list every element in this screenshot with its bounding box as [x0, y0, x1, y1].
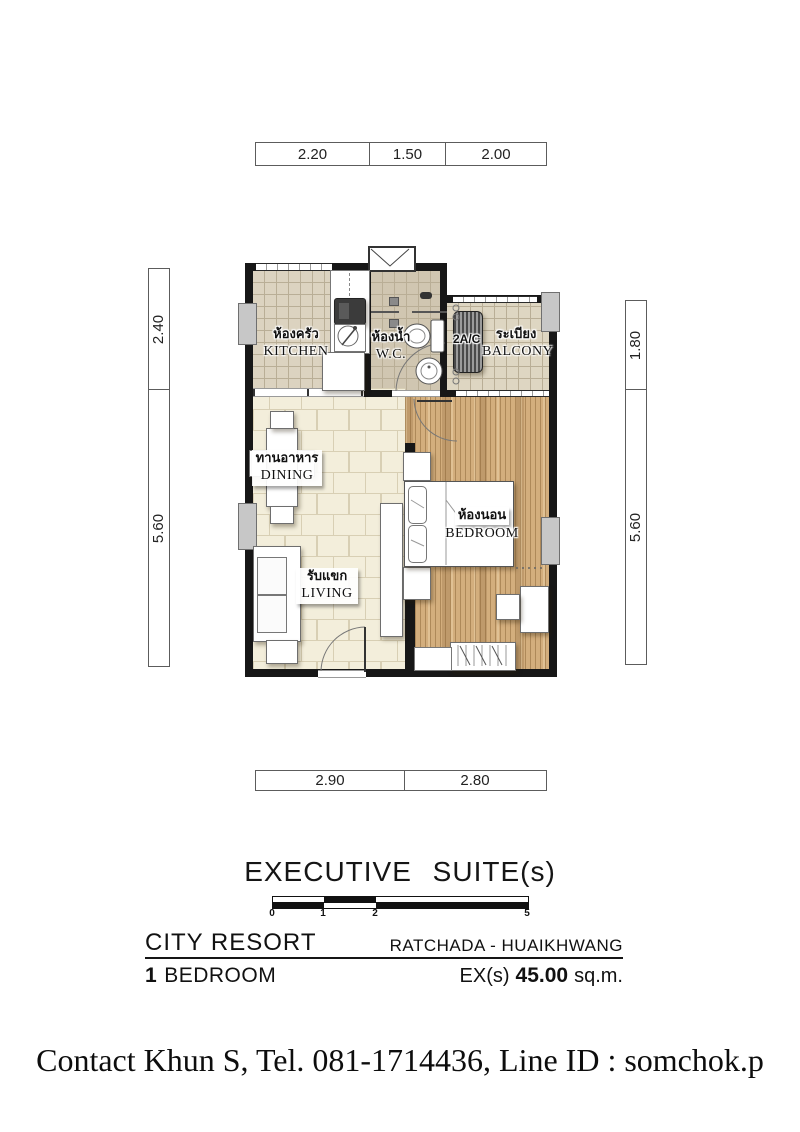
balcony-label-en: BALCONY [482, 343, 550, 361]
dim-left-1: 2.40 [151, 314, 168, 343]
dim-right-2: 5.60 [628, 512, 645, 541]
unit-area: EX(s)45.00sq.m. [460, 964, 623, 988]
shower-valve-2 [389, 319, 399, 328]
dim-top-2: 1.50 [370, 143, 446, 165]
low-cabinet [414, 647, 452, 671]
sofa-cushion-2 [257, 595, 287, 633]
contact-line: Contact Khun S, Tel. 081-1714436, Line I… [0, 1042, 800, 1079]
dim-right-1: 1.80 [628, 330, 645, 359]
dim-top-1: 2.20 [256, 143, 370, 165]
nightstand-top [403, 452, 431, 481]
balcony-label-thai: ระเบียง [482, 327, 550, 343]
balcony-window-band [453, 296, 537, 303]
dining-left-window [238, 503, 257, 550]
kitchen-label-en: KITCHEN [258, 343, 334, 361]
coffee-table [266, 640, 298, 664]
living-label: รับแขก LIVING [296, 568, 358, 604]
shower-valve-1 [389, 297, 399, 306]
bedroom-right-window [541, 517, 560, 565]
plan-title: EXECUTIVE SUITE(s) [0, 856, 800, 888]
dimension-bar-top: 2.20 1.50 2.00 [255, 142, 547, 166]
wc-label-thai: ห้องน้ำ [363, 330, 419, 346]
dim-bottom-2: 2.80 [405, 771, 545, 790]
entry-door-opening [318, 670, 366, 678]
unit-count: 1 [145, 964, 157, 987]
scale-num-2: 2 [370, 908, 380, 919]
dimension-bar-right: 1.80 5.60 [625, 300, 647, 665]
service-shaft [368, 246, 416, 272]
scale-seg-w2 [376, 897, 528, 902]
sofa-cushion-1 [257, 557, 287, 595]
balcony-label: ระเบียง BALCONY [482, 327, 550, 361]
pillow-1 [408, 486, 427, 524]
desk-chair [496, 594, 520, 620]
bedroom-label-thai: ห้องนอน [455, 507, 509, 525]
wardrobe [450, 642, 516, 671]
pillow-2 [408, 525, 427, 563]
bedroom-label: ห้องนอน BEDROOM [444, 505, 520, 543]
area-value: 45.00 [516, 964, 569, 987]
kitchen-window-band [256, 263, 332, 271]
bedroom-label-en: BEDROOM [444, 525, 520, 543]
shower-partition [371, 311, 399, 313]
dimension-bar-bottom: 2.90 2.80 [255, 770, 547, 791]
stove-burner [339, 303, 349, 319]
scale-seg-w3 [324, 903, 376, 908]
tv-cabinet [380, 503, 403, 637]
bedroom-balcony-sliding-door [456, 390, 549, 397]
dining-label-en: DINING [255, 467, 319, 485]
area-prefix: EX(s) [460, 965, 510, 987]
unit-type: 1BEDROOM [145, 964, 276, 988]
dining-label: ทานอาหาร DINING [252, 450, 322, 486]
kitchen-label: ห้องครัว KITCHEN [258, 327, 334, 361]
unit-type-text: BEDROOM [164, 964, 276, 987]
scale-num-1: 1 [318, 908, 328, 919]
scale-seg-w1 [273, 897, 324, 902]
wc-door-opening [392, 390, 440, 397]
scale-seg-b3 [376, 903, 528, 908]
dim-bottom-1: 2.90 [256, 771, 405, 790]
kitchen-sink-box [334, 324, 366, 352]
scale-num-0: 0 [267, 908, 277, 919]
wc-label: ห้องน้ำ W.C. [363, 330, 419, 364]
wc-label-en: W.C. [363, 346, 419, 364]
dining-chair-top [270, 411, 294, 429]
wall-wc-balcony-divider [440, 263, 447, 397]
nightstand-bottom [403, 567, 431, 600]
kitchen-label-thai: ห้องครัว [258, 327, 334, 343]
project-location: RATCHADA - HUAIKHWANG [390, 936, 623, 956]
area-unit: sq.m. [574, 965, 623, 987]
dim-left-2: 5.60 [151, 513, 168, 542]
dim-top-3: 2.00 [446, 143, 546, 165]
wall-wc-south [364, 390, 392, 397]
shower-head [420, 292, 432, 299]
project-name: CITY RESORT [145, 929, 316, 957]
kitchen-left-window [238, 303, 257, 345]
scale-seg-b1 [324, 897, 376, 902]
balcony-right-window [541, 292, 560, 332]
stove [334, 298, 366, 325]
ac-unit-label: 2A/C [453, 332, 480, 346]
dimension-bar-left: 2.40 5.60 [148, 268, 170, 667]
scale-num-5: 5 [522, 908, 532, 919]
living-label-en: LIVING [299, 585, 355, 603]
dining-label-thai: ทานอาหาร [255, 451, 319, 467]
scale-seg-b2 [273, 903, 324, 908]
scale-bar [272, 896, 529, 909]
living-label-thai: รับแขก [299, 569, 355, 585]
dining-chair-bottom [270, 506, 294, 524]
title-divider-line [145, 957, 623, 959]
desk [520, 586, 549, 633]
shower-partition-2 [412, 311, 447, 313]
